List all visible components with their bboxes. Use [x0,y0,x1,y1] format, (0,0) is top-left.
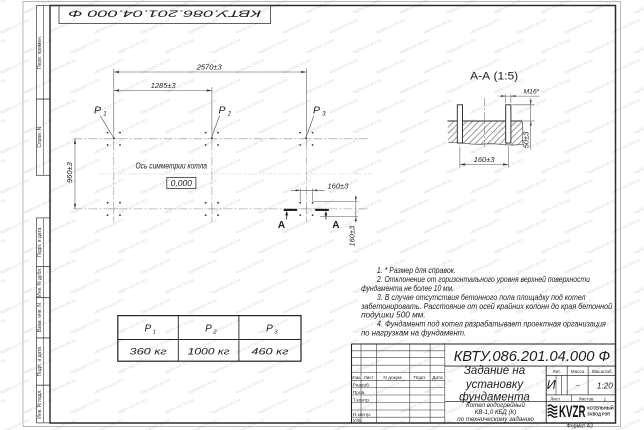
svg-text:Утв.: Утв. [353,418,362,424]
svg-text:2. Отклонение от горизонтально: 2. Отклонение от горизонтального уровня … [376,275,590,284]
svg-text:Р: Р [145,324,152,335]
svg-text:установку: установку [465,379,525,391]
svg-text:Подп. и дата: Подп. и дата [37,347,43,377]
svg-text:А: А [332,220,339,231]
svg-text:Р: Р [266,324,273,335]
svg-text:3. В случае отсутствия бетонно: 3. В случае отсутствия бетонного пола пл… [377,293,586,302]
svg-text:460 кг: 460 кг [251,347,288,358]
svg-text:1. * Размер для справок.: 1. * Размер для справок. [377,266,456,275]
svg-text:ЗАВОД РЭП: ЗАВОД РЭП [587,412,611,417]
svg-text:Масштаб: Масштаб [592,369,612,374]
svg-text:*: * [537,89,540,96]
svg-text:Лист: Лист [550,396,561,401]
svg-text:Р: Р [94,105,101,117]
svg-text:Дата: Дата [432,375,443,381]
svg-text:фундамента не более 10 мм.: фундамента не более 10 мм. [361,284,454,293]
svg-text:Формат А3: Формат А3 [567,423,593,429]
svg-text:Листов: Листов [579,396,594,401]
svg-text:Котел водогрейный: Котел водогрейный [466,402,525,409]
svg-text:Подп.: Подп. [414,375,427,381]
svg-text:1: 1 [103,112,106,118]
svg-text:Р: Р [205,324,212,335]
svg-text:1000 кг: 1000 кг [188,347,230,358]
svg-text:Изм.: Изм. [351,375,361,380]
svg-text:160±3: 160±3 [328,181,350,190]
svg-text:Подп. и дата: Подп. и дата [37,227,43,257]
svg-text:М16: М16 [524,89,537,96]
svg-text:360 кг: 360 кг [130,347,167,358]
svg-text:1: 1 [604,396,607,401]
svg-text:Н.контр.: Н.контр. [353,412,371,418]
svg-text:по нагрузкам на фундамент.: по нагрузкам на фундамент. [361,329,466,338]
svg-text:И: И [547,378,556,392]
svg-text:Инв. N дубл.: Инв. N дубл. [37,268,43,297]
svg-text:Р: Р [219,105,226,117]
svg-text:KVZR: KVZR [559,402,586,421]
svg-text:–: – [575,383,580,390]
svg-text:КОТЕЛЬНЫЙ: КОТЕЛЬНЫЙ [587,403,614,410]
svg-text:960±3: 960±3 [65,161,74,183]
svg-text:Перв. примен.: Перв. примен. [37,36,43,69]
svg-text:Р: Р [313,105,320,117]
svg-text:50±3: 50±3 [521,131,530,148]
svg-text:160±3: 160±3 [348,225,357,247]
svg-text:N докум.: N докум. [383,375,402,381]
svg-text:Т.контр.: Т.контр. [353,397,370,403]
svg-text:Ось симметрии котла: Ось симметрии котла [136,162,208,171]
svg-text:Лит.: Лит. [552,369,561,374]
svg-text:А: А [278,220,285,231]
svg-text:подушки 500 мм.: подушки 500 мм. [361,311,426,320]
svg-text:КВТУ.086.201.04.000 Ф: КВТУ.086.201.04.000 Ф [67,8,261,19]
svg-text:1:20: 1:20 [597,380,614,390]
svg-text:Инв. N подл.: Инв. N подл. [37,389,43,418]
svg-text:по техническому заданию: по техническому заданию [457,416,534,423]
svg-text:КВТУ.086.201.04.000 Ф: КВТУ.086.201.04.000 Ф [454,349,611,365]
svg-text:0,000: 0,000 [171,178,193,188]
svg-text:А-А (1:5): А-А (1:5) [470,71,518,83]
svg-text:4. Фундамент под котел разраба: 4. Фундамент под котел разрабатывает про… [377,320,607,329]
svg-text:Задание на: Задание на [464,365,525,377]
svg-text:Справ. N: Справ. N [37,126,43,147]
svg-text:забетонировать. Расстояние от: забетонировать. Расстояние от осей крайн… [360,302,613,311]
svg-text:КВ-1,0 КБД (К): КВ-1,0 КБД (К) [475,409,517,416]
svg-text:Лист: Лист [364,375,375,380]
svg-text:Масса: Масса [571,369,585,374]
svg-text:1: 1 [153,329,156,335]
svg-text:Разраб.: Разраб. [353,383,370,389]
svg-text:160±3: 160±3 [474,155,496,164]
svg-text:Взам. инв. N: Взам. инв. N [37,303,43,333]
svg-text:2: 2 [227,112,232,118]
svg-text:Пров.: Пров. [353,390,366,396]
svg-text:1285±3: 1285±3 [151,81,177,90]
svg-text:2570±3: 2570±3 [196,63,223,72]
